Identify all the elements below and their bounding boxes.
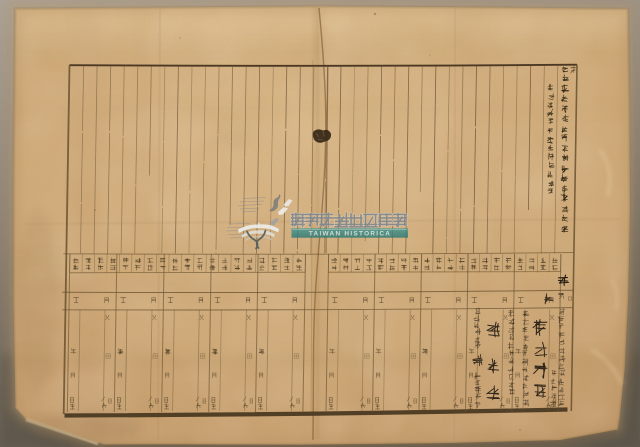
svg-text:TAIWAN HISTORICA: TAIWAN HISTORICA — [309, 231, 391, 238]
